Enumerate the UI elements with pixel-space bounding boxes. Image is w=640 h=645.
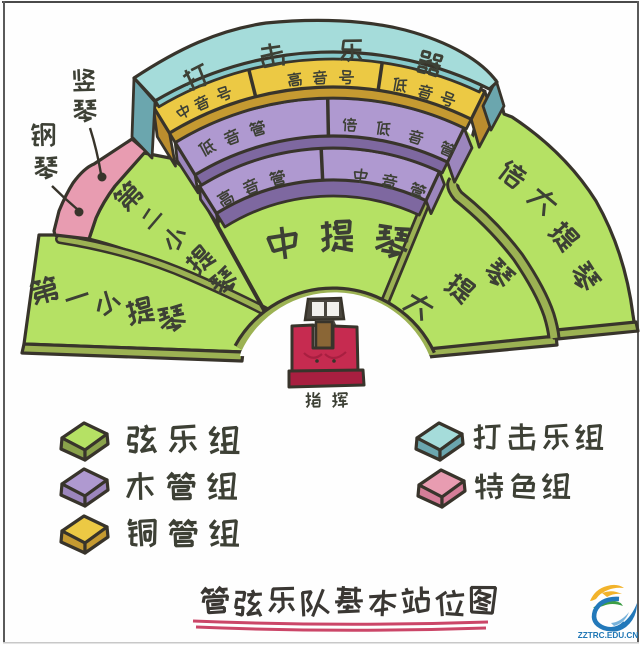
svg-text:ZZTRC.EDU.CN: ZZTRC.EDU.CN	[578, 631, 639, 640]
